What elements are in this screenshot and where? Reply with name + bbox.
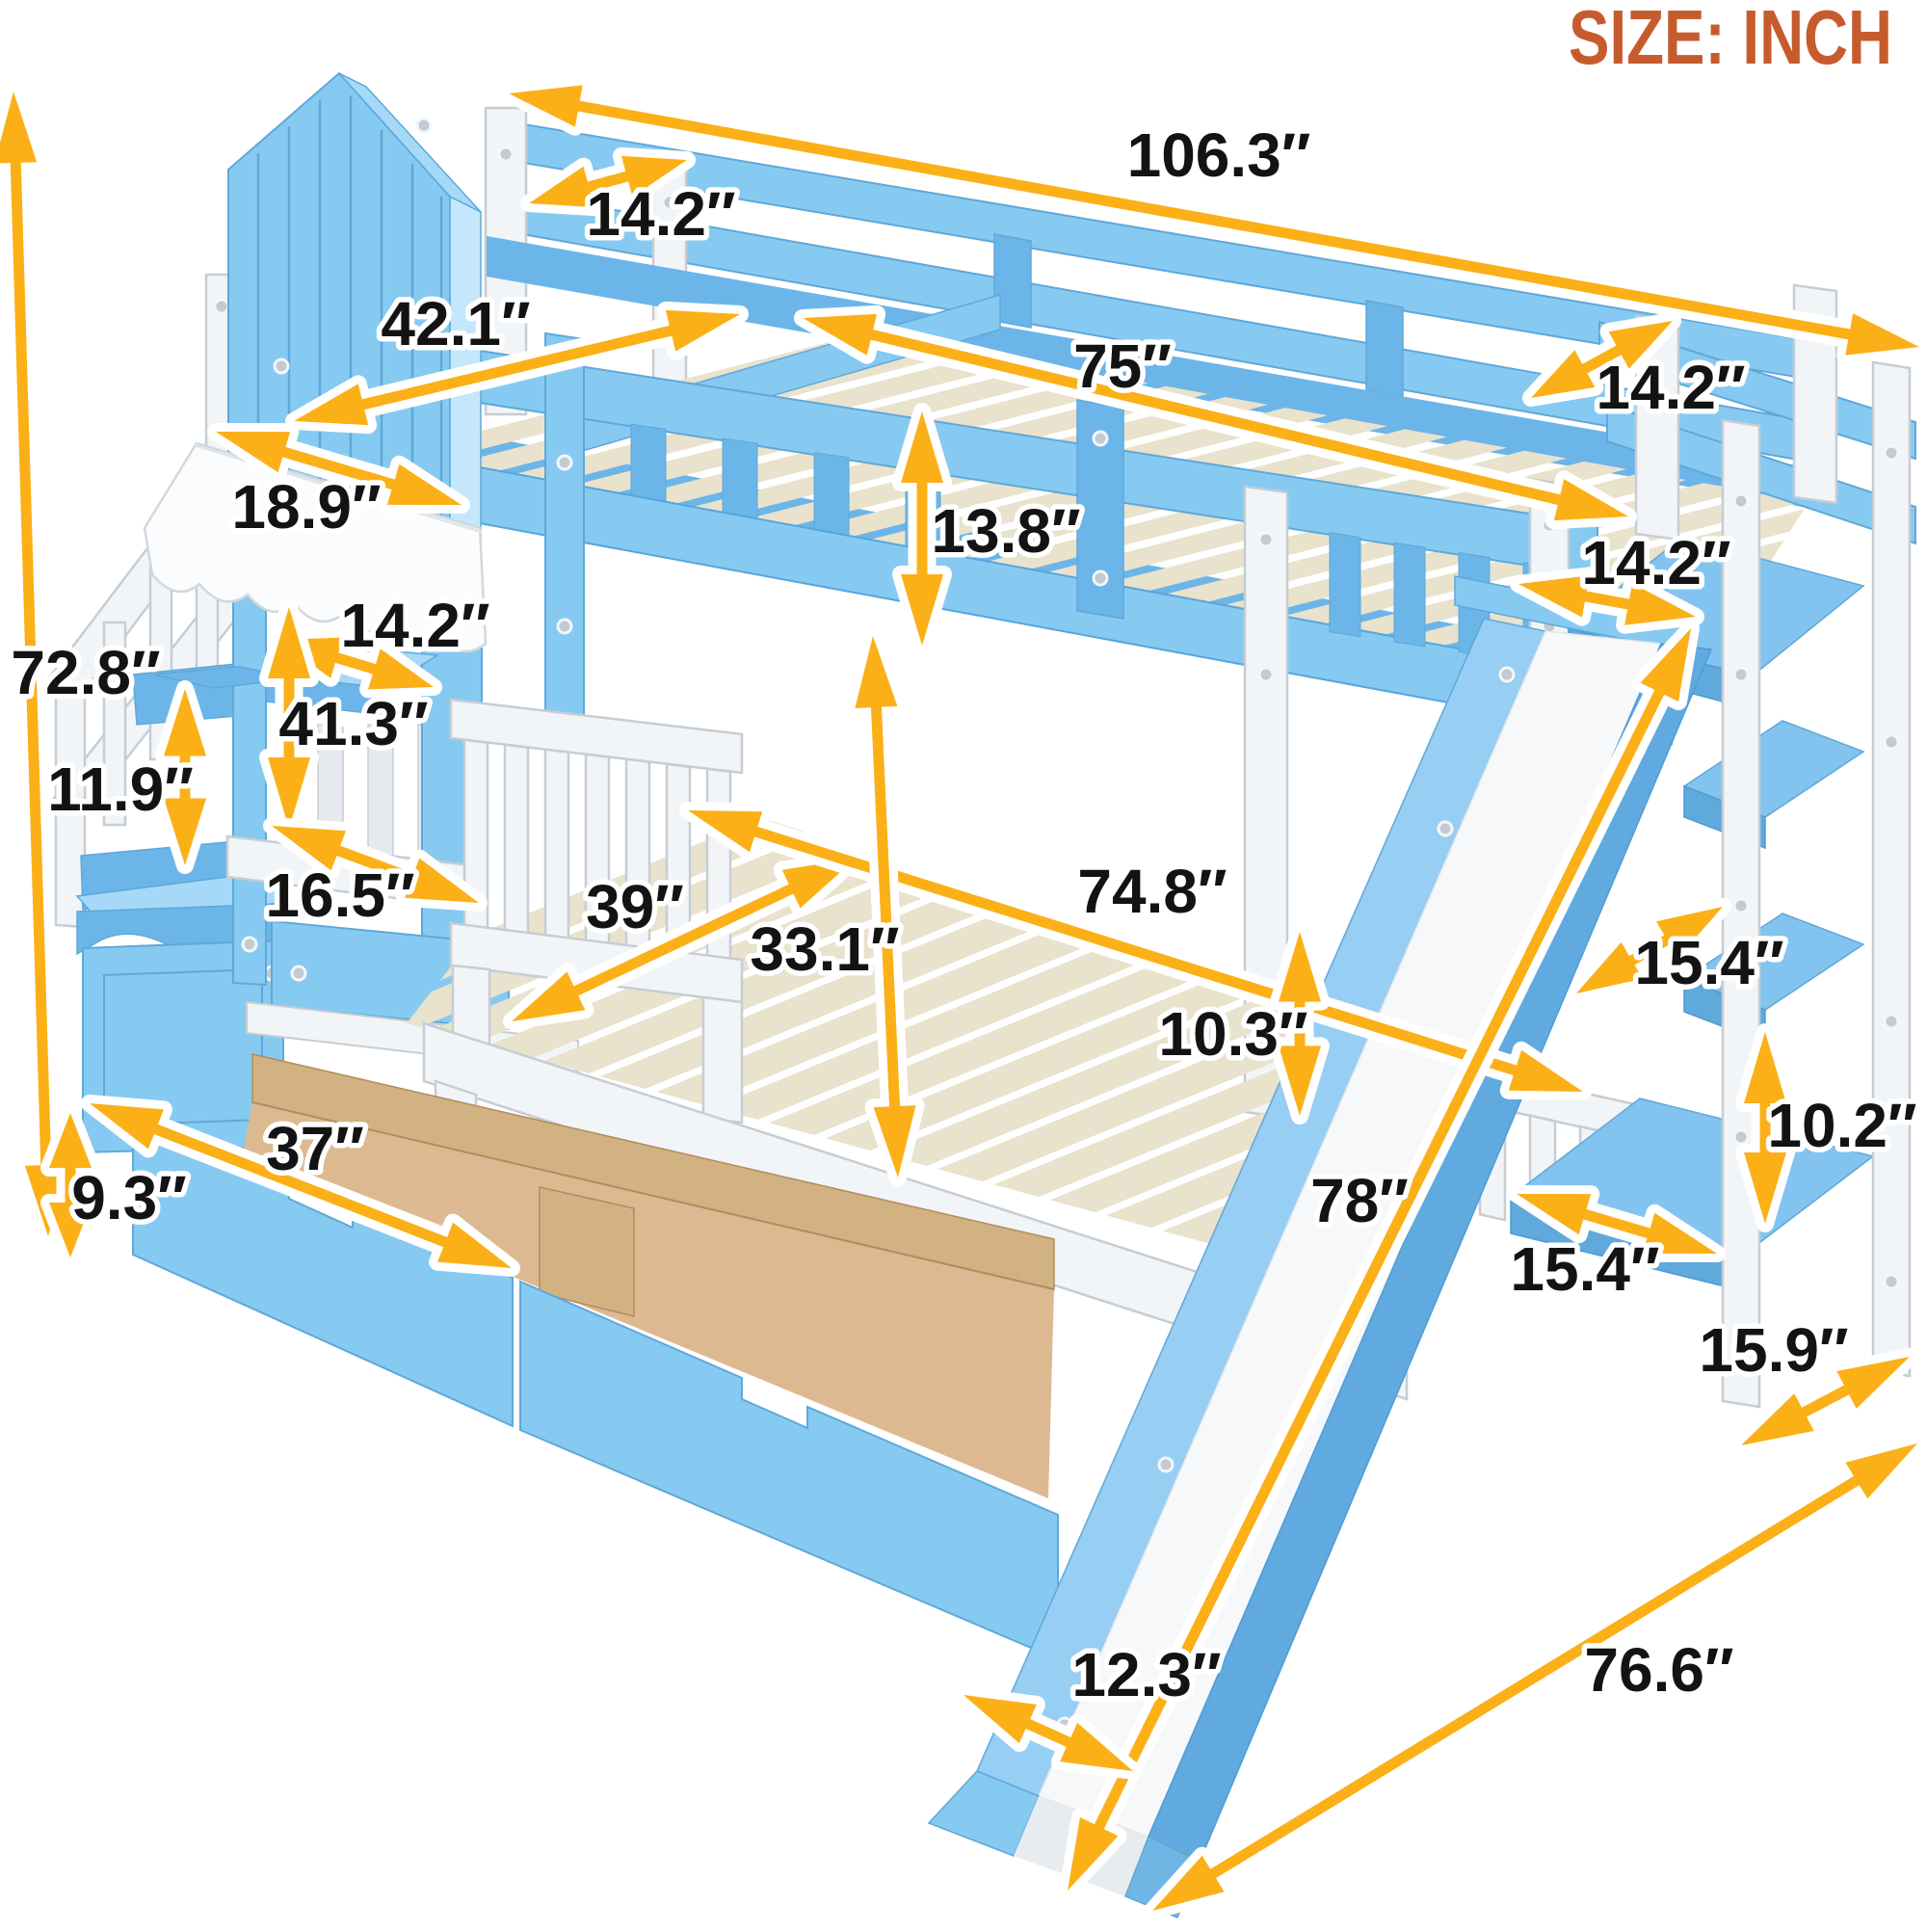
svg-text:42.1″: 42.1″ bbox=[381, 289, 530, 358]
svg-text:10.2″: 10.2″ bbox=[1767, 1091, 1916, 1160]
svg-text:13.8″: 13.8″ bbox=[931, 496, 1080, 566]
svg-text:18.9″: 18.9″ bbox=[231, 472, 381, 542]
svg-text:78″: 78″ bbox=[1310, 1166, 1409, 1235]
svg-text:14.2″: 14.2″ bbox=[1581, 528, 1730, 597]
svg-text:106.3″: 106.3″ bbox=[1127, 120, 1311, 190]
svg-text:11.9″: 11.9″ bbox=[47, 754, 194, 824]
svg-text:SIZE: INCH: SIZE: INCH bbox=[1569, 0, 1892, 80]
svg-text:39″: 39″ bbox=[586, 872, 684, 941]
svg-text:16.5″: 16.5″ bbox=[265, 860, 414, 930]
svg-text:14.2″: 14.2″ bbox=[340, 591, 489, 660]
svg-text:41.3″: 41.3″ bbox=[278, 689, 428, 758]
svg-text:72.8″: 72.8″ bbox=[11, 638, 160, 707]
svg-text:37″: 37″ bbox=[266, 1114, 364, 1183]
svg-text:15.4″: 15.4″ bbox=[1510, 1234, 1659, 1304]
svg-text:10.3″: 10.3″ bbox=[1158, 999, 1307, 1069]
svg-text:33.1″: 33.1″ bbox=[750, 914, 899, 984]
svg-text:14.2″: 14.2″ bbox=[1596, 353, 1745, 422]
svg-text:75″: 75″ bbox=[1073, 331, 1172, 401]
svg-text:76.6″: 76.6″ bbox=[1584, 1635, 1733, 1705]
svg-text:9.3″: 9.3″ bbox=[71, 1163, 187, 1232]
svg-text:14.2″: 14.2″ bbox=[586, 179, 735, 249]
svg-text:15.9″: 15.9″ bbox=[1699, 1315, 1848, 1385]
svg-text:74.8″: 74.8″ bbox=[1077, 857, 1227, 926]
svg-text:12.3″: 12.3″ bbox=[1071, 1640, 1221, 1709]
svg-text:15.4″: 15.4″ bbox=[1634, 928, 1783, 997]
